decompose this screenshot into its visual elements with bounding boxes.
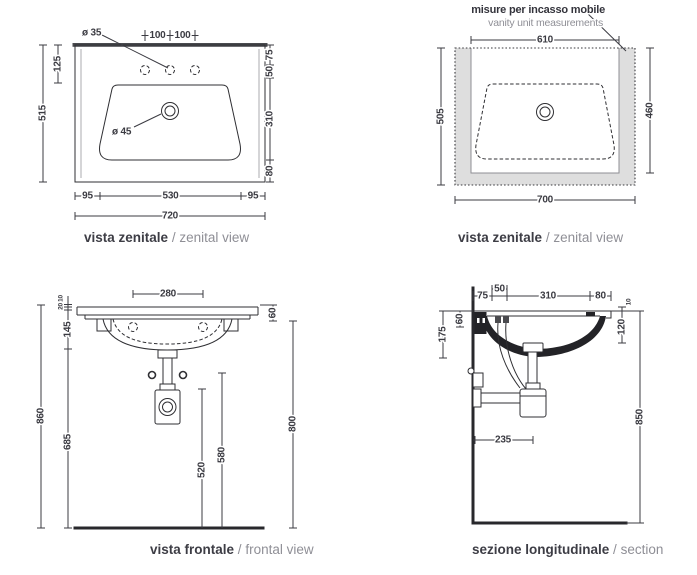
section-outline (468, 288, 626, 523)
dim-520: 520 (197, 461, 208, 478)
dim-505: 505 (436, 108, 447, 125)
left-bracket (97, 319, 111, 331)
dim-20: 20 (58, 303, 65, 310)
dim-80: 80 (265, 165, 276, 176)
dim-610: 610 (537, 35, 554, 46)
dim-95-right: 95 (248, 191, 259, 202)
vanity-unit-outline (455, 48, 635, 185)
dim-175: 175 (438, 326, 449, 343)
dim-860: 860 (36, 407, 47, 424)
frontal-view-basin: 280 10 20 145 685 860 60 800 520 580 (25, 285, 305, 555)
drain-hole (537, 104, 554, 121)
caption-italian: vista zenitale (84, 230, 168, 245)
tap-hole-section (586, 312, 595, 317)
dim-60: 60 (455, 313, 466, 324)
dim-850: 850 (635, 408, 646, 425)
zenital-view-basin: ø 35 100 100 125 515 75 50 310 80 95 530… (30, 8, 280, 238)
caption-english: zenital view (553, 230, 623, 245)
right-bracket (224, 319, 238, 331)
caption-italian: vista frontale (150, 542, 234, 557)
dim-515: 515 (38, 104, 49, 121)
dim-125: 125 (53, 55, 64, 72)
dim-95-left: 95 (82, 191, 93, 202)
caption-english: section (621, 542, 664, 557)
dim-10: 10 (626, 298, 633, 305)
mount-screw (477, 318, 480, 323)
left-fixing-hole (149, 372, 156, 379)
dim-tap-left: 100 (149, 30, 166, 41)
dim-720: 720 (162, 211, 179, 222)
dim-80: 80 (595, 291, 606, 302)
bowl-front-curve (103, 319, 232, 350)
dim-50: 50 (265, 66, 276, 77)
basin-bowl-outline (100, 85, 241, 160)
caption-italian: sezione longitudinale (472, 542, 609, 557)
dim-800: 800 (288, 415, 299, 432)
valve (468, 368, 483, 387)
vanity-note-italian: misure per incasso mobile (471, 4, 605, 16)
hidden-holes (129, 323, 208, 332)
drain-hole (162, 103, 179, 120)
dim-tap-right: 100 (174, 30, 191, 41)
tap-holes (141, 66, 200, 75)
caption-zenital-left: vista zenitale / zenital view (84, 230, 249, 245)
caption-frontal: vista frontale / frontal view (150, 542, 314, 557)
caption-english: zenital view (179, 230, 249, 245)
wall-flange (473, 389, 481, 407)
dimension-labels: 280 10 20 145 685 860 60 800 520 580 (36, 289, 299, 479)
drain-and-trap (149, 350, 187, 424)
dim-700: 700 (537, 195, 554, 206)
caption-zenital-right: vista zenitale / zenital view (458, 230, 623, 245)
dim-10: 10 (58, 295, 65, 302)
dimension-lines (37, 290, 297, 528)
dim-145: 145 (63, 321, 74, 338)
basin-hidden-outline (476, 84, 615, 159)
dim-hole-diameter: ø 35 (82, 28, 102, 39)
dimension-labels: 75 50 310 80 60 175 10 120 850 235 (438, 284, 646, 446)
dim-580: 580 (217, 446, 228, 463)
dim-60: 60 (268, 307, 279, 318)
caption-english: frontal view (245, 542, 313, 557)
vanity-note-english: vanity unit measurements (488, 17, 603, 29)
mount-screw (483, 318, 486, 323)
dimension-labels: ø 35 100 100 125 515 75 50 310 80 95 530… (38, 28, 276, 222)
dim-50: 50 (494, 284, 505, 295)
section-view-basin: 75 50 310 80 60 175 10 120 850 235 (430, 285, 697, 555)
dim-235: 235 (495, 435, 512, 446)
technical-drawing-sheet: ø 35 100 100 125 515 75 50 310 80 95 530… (0, 0, 697, 575)
dim-460: 460 (645, 102, 656, 119)
basin-front-outline (75, 307, 263, 528)
dim-685: 685 (63, 433, 74, 450)
dimension-lines (39, 30, 274, 220)
dim-75: 75 (265, 49, 276, 60)
dim-530: 530 (162, 191, 179, 202)
drain-and-trap (473, 343, 546, 417)
basin-top-outline (73, 43, 268, 182)
right-fixing-hole (180, 372, 187, 379)
caption-section: sezione longitudinale / section (472, 542, 663, 557)
dim-75: 75 (477, 291, 488, 302)
zenital-view-vanity: misure per incasso mobile vanity unit me… (430, 0, 697, 230)
caption-italian: vista zenitale (458, 230, 542, 245)
dim-310: 310 (540, 291, 557, 302)
dim-280: 280 (160, 289, 177, 300)
dim-drain-diameter: ø 45 (112, 127, 132, 138)
dim-310: 310 (265, 110, 276, 127)
dim-120: 120 (617, 318, 628, 335)
